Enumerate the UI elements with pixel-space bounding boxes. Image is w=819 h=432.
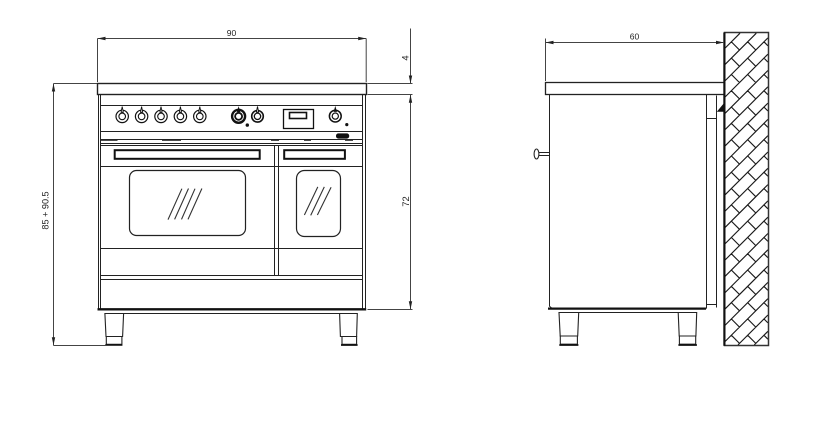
svg-text:90: 90 — [227, 28, 237, 38]
svg-text:4: 4 — [400, 55, 411, 60]
svg-text:85 + 90.5: 85 + 90.5 — [41, 191, 51, 229]
svg-text:60: 60 — [630, 32, 640, 42]
svg-text:72: 72 — [400, 196, 411, 206]
